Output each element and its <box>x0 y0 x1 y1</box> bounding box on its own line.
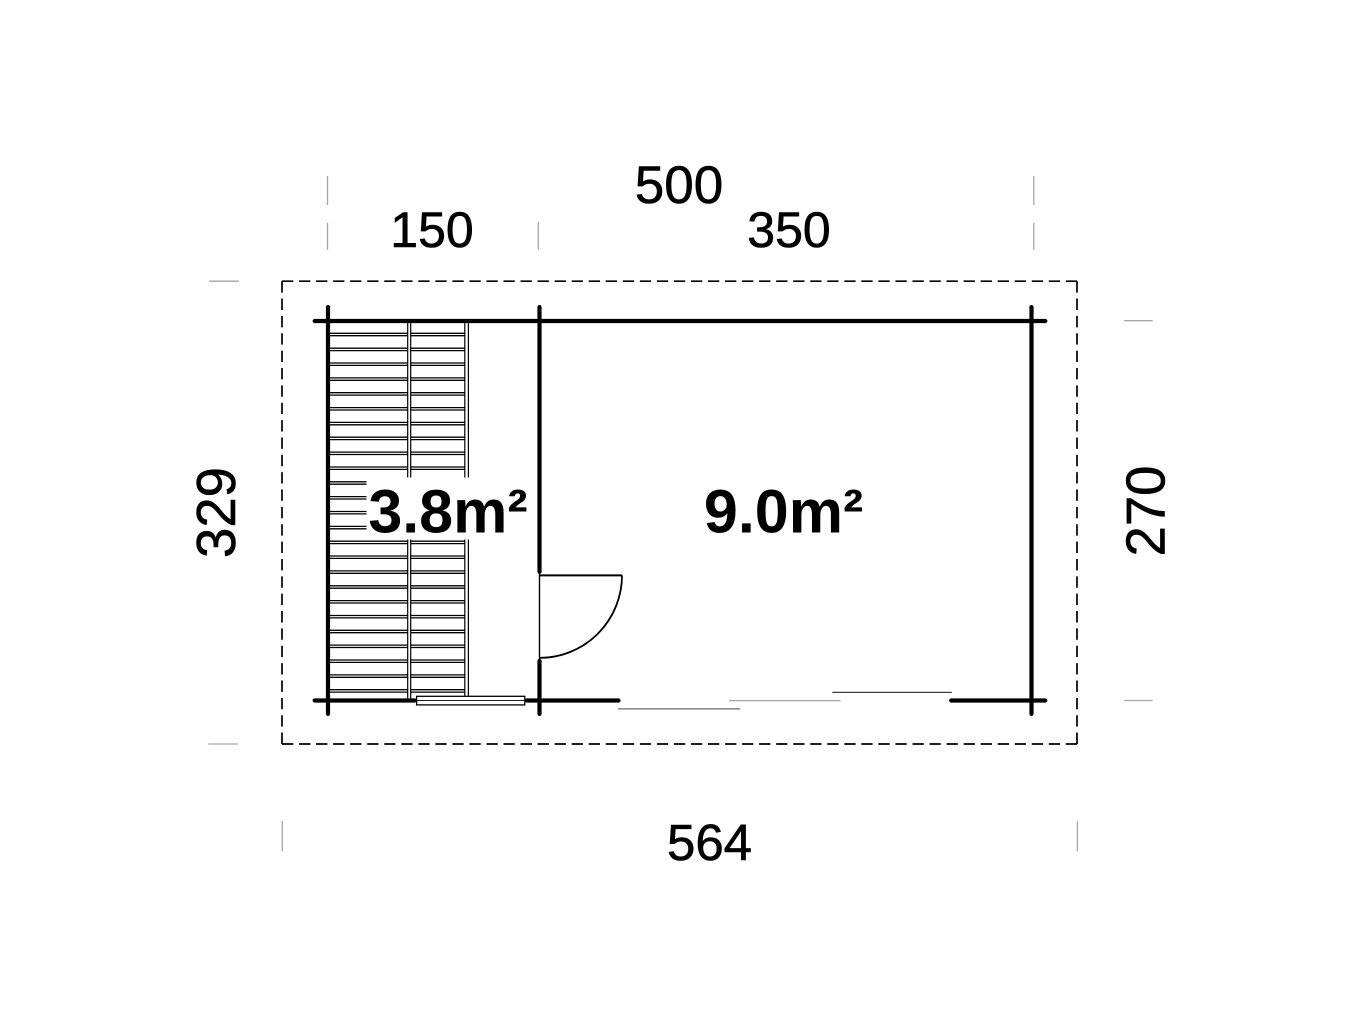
svg-text:270: 270 <box>1115 466 1176 557</box>
svg-text:329: 329 <box>186 467 247 558</box>
svg-text:564: 564 <box>667 814 752 871</box>
svg-text:500: 500 <box>635 156 723 215</box>
svg-text:3.8m²: 3.8m² <box>368 477 527 545</box>
svg-text:150: 150 <box>390 202 473 258</box>
svg-text:350: 350 <box>747 202 830 258</box>
svg-text:9.0m²: 9.0m² <box>704 477 863 545</box>
